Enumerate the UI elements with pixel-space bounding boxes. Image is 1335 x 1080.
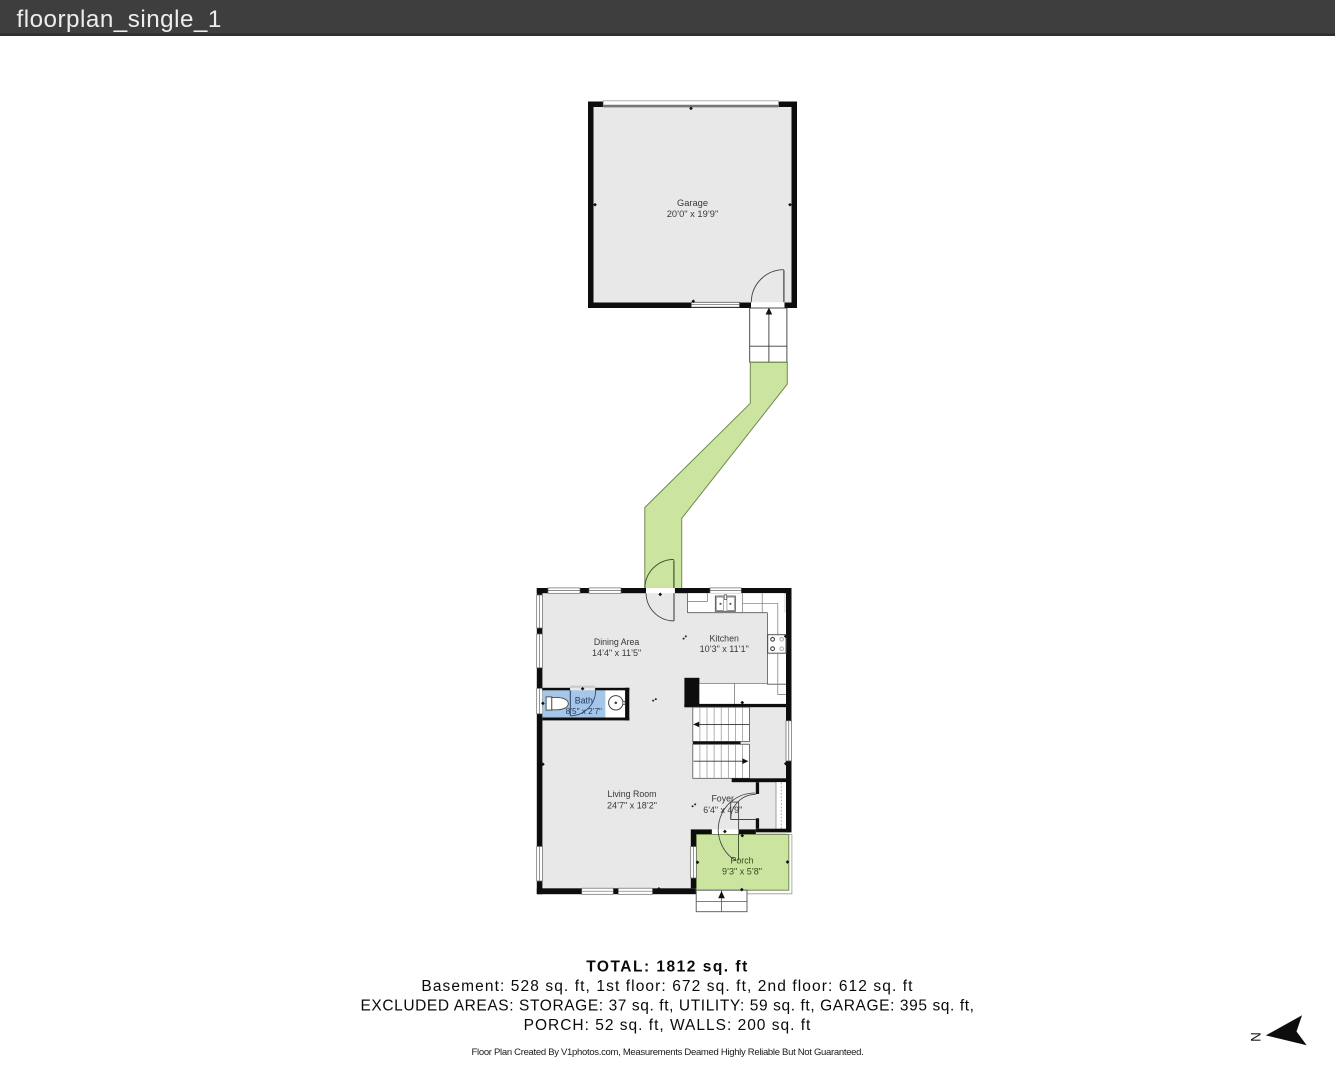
svg-text:8’5" x 2’7": 8’5" x 2’7": [566, 707, 602, 716]
svg-text:Basement: 528 sq. ft, 1st floo: Basement: 528 sq. ft, 1st floor: 672 sq.…: [421, 978, 913, 995]
svg-text:10’3" x 11’1": 10’3" x 11’1": [700, 644, 749, 654]
svg-text:Floor Plan Created By V1photos: Floor Plan Created By V1photos.com, Meas…: [472, 1047, 864, 1058]
svg-text:floorplan_single_1: floorplan_single_1: [17, 6, 222, 33]
svg-text:24’7" x 18’2": 24’7" x 18’2": [607, 800, 657, 810]
svg-text:Bath: Bath: [575, 696, 593, 706]
svg-text:N: N: [1249, 1032, 1264, 1042]
svg-text:EXCLUDED AREAS: STORAGE: 37 sq: EXCLUDED AREAS: STORAGE: 37 sq. ft, UTIL…: [360, 998, 974, 1015]
svg-text:Kitchen: Kitchen: [710, 634, 739, 644]
svg-text:20’0" x 19’9": 20’0" x 19’9": [667, 209, 719, 219]
svg-text:TOTAL: 1812 sq. ft: TOTAL: 1812 sq. ft: [586, 959, 749, 976]
svg-text:Porch: Porch: [731, 856, 754, 866]
svg-text:PORCH: 52 sq. ft, WALLS: 200 s: PORCH: 52 sq. ft, WALLS: 200 sq. ft: [524, 1017, 812, 1034]
svg-text:Foyer: Foyer: [711, 794, 734, 804]
svg-text:Garage: Garage: [677, 198, 708, 208]
svg-text:9’3" x 5’8": 9’3" x 5’8": [722, 867, 762, 877]
svg-text:6’4" x 4’9": 6’4" x 4’9": [703, 805, 742, 815]
svg-text:Living Room: Living Room: [608, 789, 657, 799]
svg-text:Dining Area: Dining Area: [594, 637, 640, 647]
svg-text:14’4" x 11’5": 14’4" x 11’5": [592, 648, 641, 658]
